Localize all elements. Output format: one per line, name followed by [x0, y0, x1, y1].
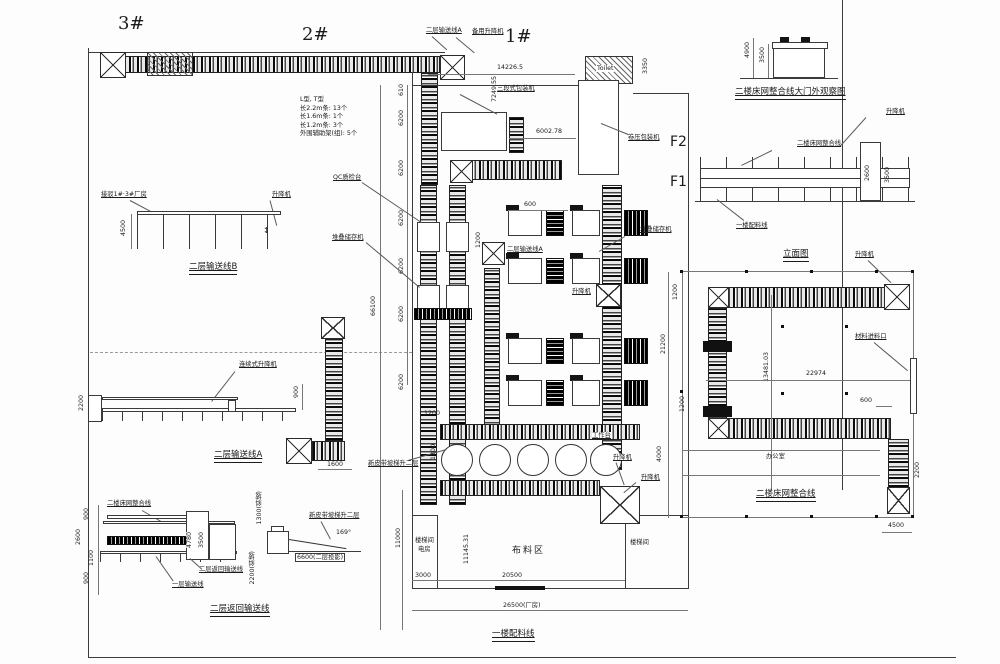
uplan-boundary-top [682, 271, 913, 272]
dim-6002: 6002.78 [536, 128, 562, 135]
leader-backup-lift [456, 37, 475, 53]
work-table [508, 338, 542, 364]
spec-note-line: 长2.2m条: 13个 [300, 105, 357, 114]
office-band-bottom [682, 475, 880, 476]
lift-label-bottom-2: 升降机 [641, 474, 660, 481]
dim-line-900-eleva [302, 384, 303, 410]
dim-2600-bl: 2600 [75, 529, 82, 545]
centerline-dashed [90, 352, 412, 353]
dim-11145: 11145.31 [463, 534, 470, 564]
corridor-hatched-wall [147, 52, 193, 76]
ramp-baseline [289, 551, 361, 552]
uplan-left-station [703, 406, 732, 417]
dim-1200-right: 1200 [672, 284, 679, 300]
floor1-conv-label: 一层输送线 [172, 581, 203, 588]
lift-xbox-inner-top [450, 160, 473, 183]
connect-note-label: 接驳1#·3#厂房 [101, 191, 147, 198]
bl-top-items [107, 515, 187, 519]
column-dot [911, 270, 914, 273]
dim-4500-elevb: 4500 [120, 220, 127, 236]
dim-1300-ramp: 1300(斜坡) [256, 491, 263, 525]
spec-note-line: L型, T型 [300, 96, 357, 105]
caption-bednet-line: 二楼床网整合线 [756, 490, 816, 502]
dim-1200-uplan: 1200 [679, 396, 686, 412]
eleva-legs [102, 412, 296, 421]
building-1-label: 1# [505, 27, 532, 48]
lift-xbox-uplan-bottomright [887, 487, 910, 514]
stacker-left-label: 堆叠储存机 [332, 234, 363, 241]
lift-xbox-uplan-bottomleft [708, 418, 729, 439]
dim-line-11000 [402, 490, 403, 630]
caption-return-line: 二层返回输送线 [210, 605, 270, 617]
spec-note-line: 外围辅助架(组): 5个 [300, 130, 357, 139]
qc-label: QC质检台 [333, 174, 361, 181]
dim-6600-ramp: 6600(二层投影) [295, 553, 345, 562]
material-inlet-label: 材料进料口 [855, 333, 886, 340]
packer-outfeed-conveyor [509, 117, 524, 153]
lift-xbox-corridor-left [100, 52, 126, 78]
stairwell-left-label-2: 电房 [418, 546, 431, 553]
round-work-table [555, 444, 587, 476]
column-dot [875, 270, 878, 273]
lift-label-uplan: 升降机 [855, 251, 874, 258]
three-stage-packer [441, 112, 507, 151]
caption-gate-view: 二楼床网整合线大门外观察图 [735, 88, 846, 100]
elevb-legs [137, 215, 281, 249]
site-left-wall-line [88, 48, 89, 658]
office-band-top [682, 450, 880, 451]
office-label: 办公室 [766, 453, 785, 460]
dim-6200: 6200 [398, 160, 405, 176]
lift-label-bottom-1: 升降机 [613, 454, 632, 461]
dim-line-600-rows [508, 210, 568, 211]
lift-xbox-mid [482, 242, 505, 265]
plant-gate [495, 586, 545, 590]
spec-note-line: 长1.6m条: 1个 [300, 113, 357, 122]
toilet-label: Toilet [596, 65, 614, 72]
ramp-sketch-label: 新皮带坡梯升二层 [309, 512, 359, 519]
dim-3500-elev: 3500 [884, 167, 891, 183]
column-dot [911, 515, 914, 518]
dim-2200-ramp: 2200(斜坡) [249, 551, 256, 585]
column-dot [875, 515, 878, 518]
lift-label-right-column: 升降机 [572, 288, 591, 295]
leader-conv-a-top [432, 36, 448, 50]
stairwell-right-wall [625, 515, 626, 588]
building-3-label: 3# [118, 14, 145, 35]
dim-610: 610 [398, 84, 405, 96]
elevation-baseline [695, 201, 915, 202]
column-dot [845, 392, 848, 395]
dim-1100-bl: 1100 [88, 550, 95, 566]
cad-sheet: 3# 2# 1# 二层输送线A 备用升降机 L型, T型 长2.2m条: 13个… [0, 0, 1000, 664]
dim-line-6002 [509, 138, 576, 139]
column-dot [745, 515, 748, 518]
feed-line-elev-label: 一楼配料线 [736, 222, 767, 229]
qc-station-box [417, 222, 440, 252]
ramp-head-cap [271, 526, 284, 532]
dim-4780-bl: 4780 [186, 532, 193, 548]
uplan-bottom-conveyor [708, 418, 891, 439]
bl-return-belt [107, 536, 187, 545]
eleva-upper-deck [102, 397, 238, 400]
midleft-vertical-conveyor [325, 339, 343, 441]
lift-xbox-uplan-topleft [708, 287, 729, 308]
dim-3500-gate: 3500 [759, 47, 766, 63]
lift-xbox-uplan-topright [884, 284, 910, 310]
work-table [508, 380, 542, 406]
dim-600-uplan: 600 [860, 397, 872, 404]
plant-topright-wall [633, 93, 688, 94]
caption-feed-line: 一楼配料线 [492, 630, 535, 642]
work-table [508, 210, 542, 236]
lift-label-gate: 升降机 [886, 108, 905, 115]
dim-line-4500-elevb [131, 214, 132, 249]
dim-66100: 66100 [370, 296, 377, 316]
dim-3000: 3000 [415, 572, 431, 579]
backup-lift-label: 备用升降机 [472, 28, 503, 35]
stacker-right-label: 堆叠储存机 [640, 226, 671, 233]
dim-line-4900 [753, 38, 754, 78]
ramp-slope-line [289, 539, 346, 549]
gate-deck-machine [801, 37, 810, 42]
dim-line-14226 [428, 74, 575, 75]
uplan-boundary-left [682, 271, 683, 518]
round-work-table [479, 444, 511, 476]
dim-line-20500 [412, 580, 625, 581]
fabric-area-label: 布料区 [512, 546, 545, 556]
dim-900-bl-1: 900 [83, 508, 90, 520]
stairwell-right-label: 楼梯间 [630, 539, 649, 546]
corridor-drop-conveyor [421, 73, 438, 185]
caption-line-a: 二层输送线A [214, 451, 262, 463]
dim-line-600-uplan [876, 406, 892, 407]
row-end-module [624, 338, 648, 364]
column-dot [680, 390, 683, 393]
dim-4900: 4900 [744, 42, 751, 58]
column-dot [781, 392, 784, 395]
caption-line-b: 二层输送线B [189, 263, 237, 275]
lift-xbox-midleft-bottom [286, 438, 312, 464]
dim-600-rows: 600 [524, 201, 536, 208]
dim-line-4500-uplan [882, 532, 912, 533]
dim-900-eleva: 900 [293, 386, 300, 398]
dim-line-13481 [771, 295, 772, 490]
lift-xbox-bottom-right [600, 486, 640, 524]
conveyor-a-top-label: 二层输送线A [426, 27, 462, 34]
dim-21200: 21200 [660, 334, 667, 354]
work-table [572, 258, 600, 284]
workbench-label: 工作台 [592, 432, 611, 439]
ramp-head-box [267, 531, 289, 554]
buffer-module [546, 380, 564, 406]
site-right-wall-line [842, 0, 843, 490]
uplan-top-conveyor [708, 287, 886, 308]
midleft-horizontal-conveyor [312, 441, 345, 461]
leader-feed-elev [717, 199, 744, 221]
qc-station-box [446, 222, 469, 252]
plant-left-wall [412, 72, 413, 588]
gate-body [773, 48, 825, 78]
column-dot [680, 515, 683, 518]
plant-right-wall [688, 93, 689, 588]
corridor-top-wall [89, 52, 445, 53]
column-dot [680, 270, 683, 273]
dim-chain-line [407, 85, 408, 385]
dim-line-3500-gate [768, 44, 769, 78]
uplan-left-station [703, 341, 732, 352]
column-dot [845, 325, 848, 328]
dim-line-22974 [706, 380, 911, 381]
dim-4500-uplan: 4500 [888, 522, 904, 529]
floor-f2-label: F2 [670, 134, 687, 150]
dim-26500: 26500(厂房) [503, 602, 541, 609]
dim-13481: 13481.03 [763, 352, 770, 382]
lift-label-elevb: 升降机 [272, 191, 291, 198]
bednet-bl-label: 二楼床网整合线 [107, 500, 151, 507]
dim-11000: 11000 [395, 528, 402, 548]
work-table [572, 380, 600, 406]
lift-updown-glyph: ↕ [263, 226, 270, 235]
gate-deck-machine [780, 37, 789, 42]
dim-6200: 6200 [398, 306, 405, 322]
dim-line-26500 [412, 610, 688, 611]
mid-conveyor-column [484, 268, 500, 428]
dim-2600-elev: 2600 [864, 165, 871, 181]
stairwell-left-top [412, 515, 437, 516]
leader-material-inlet [874, 342, 908, 371]
dim-4000: 4000 [656, 446, 663, 462]
leader-ramp-sketch [321, 521, 331, 539]
buffer-module [546, 338, 564, 364]
dim-2200-uplan: 2200 [914, 462, 921, 478]
dim-1200-mid: 1200 [475, 232, 482, 248]
row-end-module [624, 258, 648, 284]
lift-xbox-right-column [596, 284, 621, 307]
gate-baseline [740, 78, 838, 79]
stairwell-left-wall [437, 515, 438, 588]
column-dot [810, 515, 813, 518]
dim-1600: 1600 [327, 461, 343, 468]
lift-xbox-midleft-top [321, 317, 345, 339]
column-dot [810, 270, 813, 273]
column-dot [745, 270, 748, 273]
work-table [508, 258, 542, 284]
ramp-plan-label: 新皮带坡梯升二层 [368, 460, 418, 467]
eleva-end-box [88, 395, 102, 422]
roll-press-packer-label: 卷压包装机 [628, 134, 659, 141]
dim-900-bl-2: 900 [83, 572, 90, 584]
floor-f1-label: F1 [670, 174, 687, 190]
continuous-lift-label: 连续式升降机 [239, 361, 277, 368]
site-bottom-wall-line [88, 657, 956, 658]
material-inlet-door [910, 358, 917, 414]
ramp-angle: 169° [336, 529, 351, 536]
dim-14226: 14226.5 [497, 64, 523, 71]
dim-2200-eleva: 2200 [78, 395, 85, 411]
round-work-table [517, 444, 549, 476]
bl-dim-line [98, 505, 99, 595]
dim-22974: 22974 [806, 370, 826, 377]
cross-transfer-module [414, 308, 472, 320]
dim-6200: 6200 [398, 210, 405, 226]
dim-20500: 20500 [502, 572, 522, 579]
dim-3350: 3350 [642, 58, 649, 74]
uplan-boundary-bottom [682, 517, 913, 518]
dim-line-overall [380, 85, 381, 630]
return-line-bl-label: 二层返回输送线 [199, 566, 243, 573]
buffer-module [546, 210, 564, 236]
spec-note-line: 长1.2m条: 3个 [300, 122, 357, 131]
lift-xbox-backup [440, 55, 465, 80]
stairwell-left-label-1: 楼梯间 [415, 537, 434, 544]
bednet-line-elev-label: 二楼床网整合线 [797, 140, 841, 147]
bottom-conveyor-lower [440, 480, 600, 496]
dim-6200: 6200 [398, 110, 405, 126]
bl-right-box [209, 524, 236, 560]
column-dot [781, 325, 784, 328]
caption-elevation: 立面图 [783, 250, 809, 262]
dim-3500-bl: 3500 [198, 532, 205, 548]
dim-1200-bottom: 1200 [424, 410, 440, 417]
building-2-label: 2# [302, 25, 329, 46]
spec-note: L型, T型 长2.2m条: 13个 长1.6m条: 1个 长1.2m条: 3个… [300, 96, 357, 139]
eleva-lift-mark [228, 400, 236, 412]
row-end-module [624, 380, 648, 406]
plant-bottom-wall [412, 588, 689, 589]
dim-6200: 6200 [398, 374, 405, 390]
dim-line-1600 [318, 469, 352, 470]
dim-line-21200 [668, 272, 669, 518]
work-table [572, 210, 600, 236]
three-stage-packer-label: 三段式包装机 [497, 85, 535, 92]
buffer-module [546, 258, 564, 284]
inner-top-conveyor [470, 160, 562, 180]
uplan-down-conveyor [888, 439, 909, 488]
work-table [572, 338, 600, 364]
